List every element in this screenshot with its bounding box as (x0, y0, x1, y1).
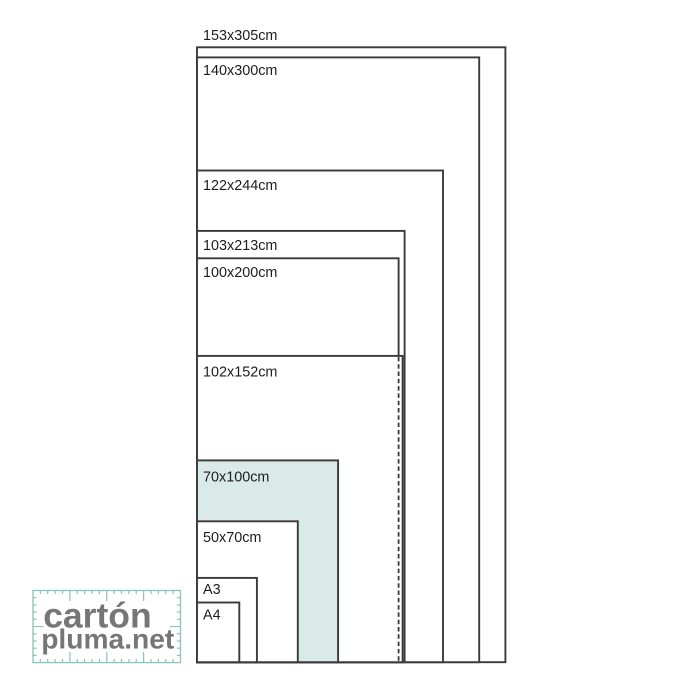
svg-text:122x244cm: 122x244cm (203, 178, 277, 194)
svg-text:102x152cm: 102x152cm (203, 364, 277, 380)
svg-text:103x213cm: 103x213cm (203, 238, 277, 254)
svg-text:140x300cm: 140x300cm (203, 63, 277, 79)
svg-text:100x200cm: 100x200cm (203, 265, 277, 281)
svg-text:70x100cm: 70x100cm (203, 469, 269, 485)
svg-text:pluma.net: pluma.net (41, 622, 175, 654)
svg-text:A3: A3 (203, 582, 221, 598)
svg-text:153x305cm: 153x305cm (203, 28, 277, 44)
svg-text:A4: A4 (203, 607, 221, 623)
svg-text:50x70cm: 50x70cm (203, 530, 261, 546)
